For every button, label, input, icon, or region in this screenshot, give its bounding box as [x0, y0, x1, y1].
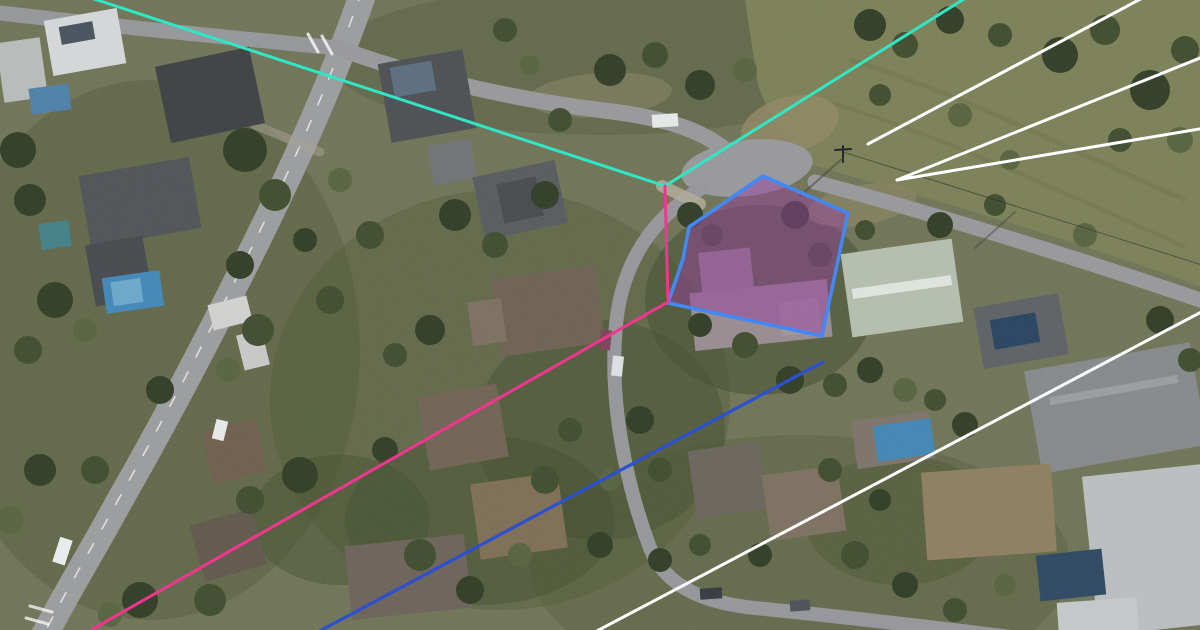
- satellite-imagery-layer: [0, 0, 1200, 630]
- satellite-map: [0, 0, 1200, 630]
- grain-texture: [0, 0, 1200, 630]
